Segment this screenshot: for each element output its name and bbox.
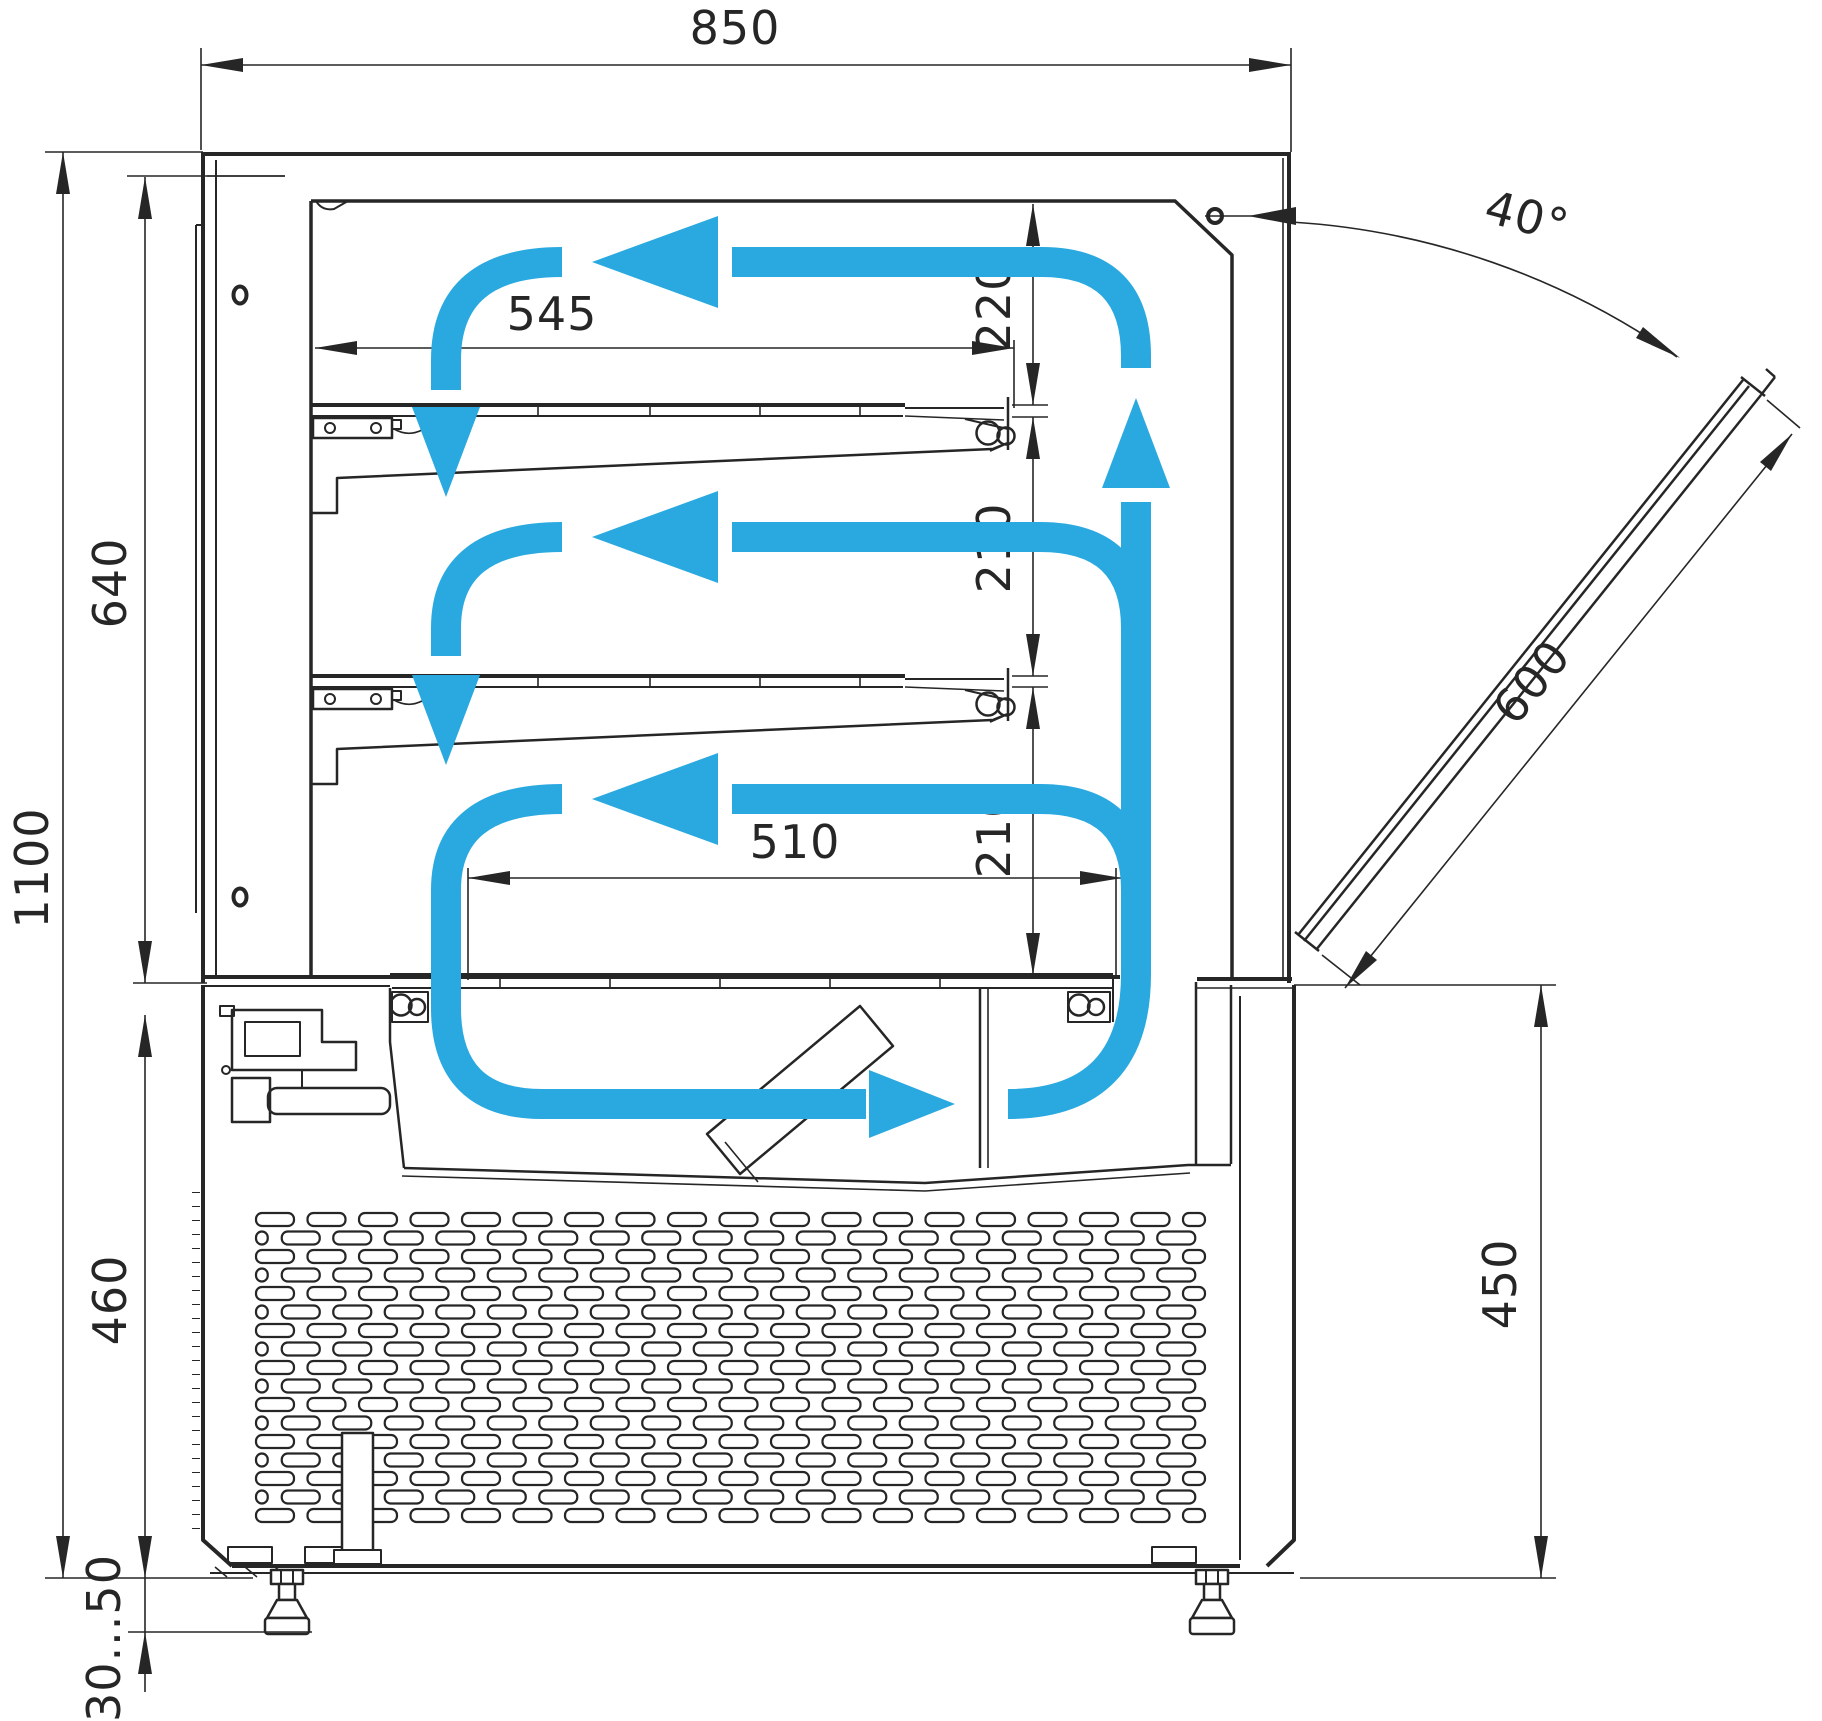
- grille-slot: [720, 1472, 758, 1485]
- grille-slot: [771, 1324, 809, 1337]
- grille-slot: [462, 1324, 500, 1337]
- grille-slot: [488, 1454, 526, 1467]
- grille-slot: [1157, 1343, 1195, 1356]
- grille-slot: [900, 1454, 938, 1467]
- grille-slot: [745, 1232, 783, 1245]
- grille-slot: [514, 1398, 552, 1411]
- dim-label: 640: [83, 538, 137, 629]
- grille-slot: [488, 1306, 526, 1319]
- grille-slot: [308, 1472, 346, 1485]
- dim-top-clearance: 220: [967, 204, 1048, 417]
- grille-slot: [565, 1324, 603, 1337]
- grille-slot: [256, 1417, 268, 1430]
- grille-slot: [694, 1306, 732, 1319]
- grille-slot: [771, 1250, 809, 1263]
- airflow-top-duct: [732, 262, 1136, 368]
- grille-slot: [668, 1435, 706, 1448]
- grille-slot: [874, 1287, 912, 1300]
- grille-slot: [617, 1398, 655, 1411]
- grille-slot: [591, 1380, 629, 1393]
- dim-label: 40°: [1479, 180, 1575, 254]
- grille-slot: [539, 1343, 577, 1356]
- grille-slot: [848, 1269, 886, 1282]
- grille-slot: [1080, 1509, 1118, 1522]
- grille-slot: [720, 1435, 758, 1448]
- grille-slot: [1029, 1509, 1067, 1522]
- grille-slot: [256, 1380, 268, 1393]
- airflow-arrow-down-1: [412, 407, 480, 497]
- grille-slot: [591, 1269, 629, 1282]
- grille-slot: [617, 1213, 655, 1226]
- grille-slot: [436, 1269, 474, 1282]
- grille-slot: [1080, 1213, 1118, 1226]
- grille-slot: [977, 1287, 1015, 1300]
- grille-slot: [926, 1213, 964, 1226]
- grille-slot: [617, 1324, 655, 1337]
- grille-slot: [874, 1472, 912, 1485]
- grille-slot: [926, 1435, 964, 1448]
- grille-slot: [436, 1417, 474, 1430]
- grille-slot: [771, 1361, 809, 1374]
- grille-slot: [745, 1380, 783, 1393]
- grille-slot: [926, 1287, 964, 1300]
- grille-slot: [1003, 1269, 1041, 1282]
- grille-slot: [642, 1269, 680, 1282]
- dim-shelf-length: 545: [315, 287, 1014, 408]
- grille-slot: [900, 1306, 938, 1319]
- dim-base-height: 460: [83, 1015, 152, 1578]
- grille-slot: [797, 1417, 835, 1430]
- grille-slot: [874, 1213, 912, 1226]
- grille-slot: [823, 1435, 861, 1448]
- grille-slot: [488, 1491, 526, 1504]
- grille-slot: [1132, 1250, 1170, 1263]
- grille-slot: [308, 1398, 346, 1411]
- grille-slot: [745, 1454, 783, 1467]
- grille-slot: [385, 1232, 423, 1245]
- grille-slot: [1157, 1417, 1195, 1430]
- airflow-arrow-up: [1102, 398, 1170, 488]
- grille-slot: [565, 1435, 603, 1448]
- grille-slot: [1080, 1287, 1118, 1300]
- grille-slot: [617, 1361, 655, 1374]
- grille-slot: [797, 1491, 835, 1504]
- grille-slot: [668, 1361, 706, 1374]
- grille-slot: [668, 1509, 706, 1522]
- door-handle-lip: [1761, 369, 1775, 395]
- back-wall-hole-top: [234, 287, 247, 304]
- grille-slot: [1029, 1361, 1067, 1374]
- grille-slot: [1080, 1398, 1118, 1411]
- grille-slot: [1106, 1417, 1144, 1430]
- grille-slot: [1132, 1398, 1170, 1411]
- grille-slot: [411, 1472, 449, 1485]
- grille-slot: [488, 1269, 526, 1282]
- technical-drawing-page: 850 1100 640 460 3: [0, 0, 1822, 1721]
- grille-slot: [256, 1509, 294, 1522]
- grille-slot: [1157, 1380, 1195, 1393]
- grille-slot: [797, 1269, 835, 1282]
- dim-label: 510: [750, 815, 841, 869]
- grille-slot: [256, 1343, 268, 1356]
- grille-slot: [539, 1491, 577, 1504]
- grille-slot: [977, 1213, 1015, 1226]
- grille-slot: [411, 1213, 449, 1226]
- grille-slot: [565, 1509, 603, 1522]
- grille-slot: [848, 1491, 886, 1504]
- grille-slot: [1054, 1454, 1092, 1467]
- grille-slot: [256, 1361, 294, 1374]
- grille-slot: [514, 1435, 552, 1448]
- grille-slot: [539, 1454, 577, 1467]
- dim-label: 450: [1473, 1239, 1527, 1330]
- grille-slot: [308, 1509, 346, 1522]
- grille-slot: [900, 1491, 938, 1504]
- grille-slot: [823, 1361, 861, 1374]
- grille-slot: [1054, 1306, 1092, 1319]
- grille-slot: [436, 1491, 474, 1504]
- back-wall-hole-bottom: [234, 889, 247, 906]
- grille-slot: [900, 1232, 938, 1245]
- grille-slot: [462, 1287, 500, 1300]
- grille-slot: [1157, 1232, 1195, 1245]
- grille-slot: [977, 1250, 1015, 1263]
- airflow-mid-duct-1: [732, 537, 1136, 628]
- grille-slot: [282, 1343, 320, 1356]
- grille-slot: [977, 1472, 1015, 1485]
- grille-slot: [642, 1454, 680, 1467]
- grille-slot: [385, 1380, 423, 1393]
- thermostat-bulb: [268, 1088, 390, 1114]
- grille-slot: [1003, 1417, 1041, 1430]
- grille-slot: [282, 1380, 320, 1393]
- grille-slot: [823, 1213, 861, 1226]
- grille-slot: [926, 1250, 964, 1263]
- grille-slot: [1183, 1435, 1205, 1448]
- grille-slot: [462, 1472, 500, 1485]
- grille-slot: [617, 1250, 655, 1263]
- grille-slot: [1080, 1361, 1118, 1374]
- grille-slot: [1003, 1343, 1041, 1356]
- grille-slot: [1132, 1287, 1170, 1300]
- dim-display-height: 640: [83, 176, 285, 983]
- grille-slot: [874, 1361, 912, 1374]
- grille-slot: [462, 1398, 500, 1411]
- grille-slot: [308, 1213, 346, 1226]
- grille-slot: [591, 1417, 629, 1430]
- grille-slot: [926, 1472, 964, 1485]
- grille-slot: [256, 1250, 294, 1263]
- grille-slot: [462, 1509, 500, 1522]
- grille-slot: [514, 1213, 552, 1226]
- grille-slot: [1029, 1213, 1067, 1226]
- grille-slot: [565, 1361, 603, 1374]
- grille-slot: [1183, 1324, 1205, 1337]
- dim-base-front-height: 450: [1294, 985, 1556, 1578]
- grille-slot: [874, 1509, 912, 1522]
- grille-slot: [282, 1417, 320, 1430]
- grille-slot: [848, 1380, 886, 1393]
- grille-slot: [462, 1435, 500, 1448]
- grille-slot: [617, 1509, 655, 1522]
- grille-slot: [1157, 1269, 1195, 1282]
- grille-slot: [694, 1454, 732, 1467]
- grille-slot: [1029, 1250, 1067, 1263]
- grille-slot: [436, 1306, 474, 1319]
- grille-slot: [1132, 1435, 1170, 1448]
- dim-label: 460: [83, 1255, 137, 1346]
- dim-label: 1100: [5, 807, 59, 928]
- grille-slot: [539, 1232, 577, 1245]
- grille-slot: [771, 1435, 809, 1448]
- dim-label: 30...50: [77, 1554, 131, 1721]
- grille-slot: [1080, 1472, 1118, 1485]
- grille-slot: [668, 1472, 706, 1485]
- adjustable-foot-left: [265, 1570, 309, 1634]
- grille-slot: [333, 1306, 371, 1319]
- grille-slot: [256, 1435, 294, 1448]
- grille-slot: [385, 1306, 423, 1319]
- grille-slot: [256, 1306, 268, 1319]
- grille-slot: [977, 1435, 1015, 1448]
- airflow-arrow-left-bottom: [592, 753, 718, 845]
- grille-slot: [745, 1417, 783, 1430]
- airflow-arrow-left-top: [592, 216, 718, 308]
- grille-slot: [900, 1269, 938, 1282]
- dim-door-length: 600: [1322, 400, 1800, 988]
- grille-slot: [694, 1417, 732, 1430]
- grille-slot: [1106, 1380, 1144, 1393]
- grille-slot: [333, 1380, 371, 1393]
- grille-slot: [591, 1306, 629, 1319]
- grille-slot: [926, 1324, 964, 1337]
- grille-slot: [1157, 1306, 1195, 1319]
- grille-slot: [1106, 1491, 1144, 1504]
- grille-slot: [1054, 1269, 1092, 1282]
- grille-slot: [823, 1250, 861, 1263]
- grille-slot: [951, 1343, 989, 1356]
- grille-slot: [565, 1213, 603, 1226]
- dim-label: 850: [690, 1, 781, 55]
- grille-slot: [514, 1324, 552, 1337]
- grille-slot: [256, 1398, 294, 1411]
- grille-slot: [617, 1472, 655, 1485]
- grille-slot: [1157, 1454, 1195, 1467]
- grille-slot: [771, 1472, 809, 1485]
- shelf-bracket-arm: [312, 720, 992, 784]
- grille-slot: [1132, 1361, 1170, 1374]
- grille-slot: [1029, 1324, 1067, 1337]
- grille-slot: [694, 1269, 732, 1282]
- grille-slot: [565, 1287, 603, 1300]
- grille-slot: [642, 1343, 680, 1356]
- grille-slot: [617, 1435, 655, 1448]
- grille-slot: [771, 1398, 809, 1411]
- grille-slot: [1132, 1472, 1170, 1485]
- grille-slot: [1106, 1343, 1144, 1356]
- grille-slot: [823, 1324, 861, 1337]
- grille-slot: [848, 1343, 886, 1356]
- grille-slot: [951, 1417, 989, 1430]
- grille-slot: [1054, 1380, 1092, 1393]
- grille-slot: [436, 1380, 474, 1393]
- dim-lower-clearance: 210: [967, 687, 1040, 975]
- grille-slot: [591, 1491, 629, 1504]
- grille-slot: [642, 1232, 680, 1245]
- bottom-tray: [390, 975, 1113, 1022]
- grille-slot: [771, 1509, 809, 1522]
- grille-slot: [359, 1361, 397, 1374]
- grille-slot: [745, 1343, 783, 1356]
- grille-slot: [771, 1287, 809, 1300]
- grille-slot: [385, 1491, 423, 1504]
- shelf-bracket-arm: [312, 449, 992, 513]
- grille-slot: [308, 1250, 346, 1263]
- grille-slot: [1029, 1435, 1067, 1448]
- grille-slot: [823, 1398, 861, 1411]
- grille-slot: [1054, 1491, 1092, 1504]
- grille-slot: [926, 1361, 964, 1374]
- grille-slot: [488, 1417, 526, 1430]
- refrigerated-display-case-section-drawing: 850 1100 640 460 3: [0, 0, 1822, 1721]
- grille-slot: [1080, 1250, 1118, 1263]
- dim-label: 545: [507, 287, 598, 341]
- grille-slot: [411, 1398, 449, 1411]
- grille-slot: [1054, 1232, 1092, 1245]
- grille-slot: [874, 1398, 912, 1411]
- grille-slot: [359, 1213, 397, 1226]
- grille-slot: [333, 1232, 371, 1245]
- grille-slot: [359, 1398, 397, 1411]
- grille-slot: [951, 1269, 989, 1282]
- grille-slot: [514, 1287, 552, 1300]
- grille-slot: [642, 1417, 680, 1430]
- grille-slot: [488, 1232, 526, 1245]
- grille-slot: [385, 1269, 423, 1282]
- grille-slot: [514, 1250, 552, 1263]
- grille-slot: [900, 1380, 938, 1393]
- grille-slot: [591, 1232, 629, 1245]
- grille-slot: [308, 1324, 346, 1337]
- grille-slot: [565, 1472, 603, 1485]
- grille-slot: [282, 1269, 320, 1282]
- grille-slot: [951, 1380, 989, 1393]
- grille-slot: [359, 1287, 397, 1300]
- grille-slot: [1054, 1343, 1092, 1356]
- grille-slot: [977, 1361, 1015, 1374]
- grille-slot: [977, 1509, 1015, 1522]
- grille-slot: [488, 1380, 526, 1393]
- grille-slot: [436, 1232, 474, 1245]
- grille-slot: [694, 1343, 732, 1356]
- dim-label: 600: [1482, 630, 1581, 735]
- grille-slot: [797, 1306, 835, 1319]
- grille-slot: [411, 1435, 449, 1448]
- grille-slot: [591, 1454, 629, 1467]
- airflow-arrow-down-2: [412, 675, 480, 765]
- adjustable-foot-right: [1190, 1570, 1234, 1634]
- grille-slot: [977, 1398, 1015, 1411]
- airflow-arrow-left-mid: [592, 491, 718, 583]
- grille-slot: [333, 1417, 371, 1430]
- grille-slot: [282, 1232, 320, 1245]
- grille-slot: [1183, 1509, 1205, 1522]
- grille-slot: [256, 1454, 268, 1467]
- grille-slot: [720, 1509, 758, 1522]
- grille-slot: [642, 1380, 680, 1393]
- grille-slot: [1183, 1250, 1205, 1263]
- grille-slot: [462, 1250, 500, 1263]
- grille-slot: [926, 1509, 964, 1522]
- grille-slot: [1132, 1213, 1170, 1226]
- grille-slot: [874, 1324, 912, 1337]
- grille-slot: [436, 1343, 474, 1356]
- grille-slot: [951, 1454, 989, 1467]
- grille-slot: [565, 1250, 603, 1263]
- grille-slot: [926, 1398, 964, 1411]
- grille-slot: [823, 1287, 861, 1300]
- grille-slot: [1003, 1491, 1041, 1504]
- grille-slot: [823, 1509, 861, 1522]
- grille-slot: [308, 1287, 346, 1300]
- grille-slot: [462, 1213, 500, 1226]
- grille-pillar: [334, 1433, 381, 1564]
- grille-slot: [1132, 1324, 1170, 1337]
- airflow-arrow-right-well: [869, 1070, 955, 1138]
- grille-slot: [514, 1472, 552, 1485]
- grille-slot: [951, 1232, 989, 1245]
- grille-slot: [668, 1250, 706, 1263]
- grille-slot: [1029, 1287, 1067, 1300]
- grille-slot: [745, 1306, 783, 1319]
- grille-slot: [256, 1269, 268, 1282]
- grille-slot: [720, 1287, 758, 1300]
- grille-slot: [668, 1324, 706, 1337]
- grille-slot: [565, 1398, 603, 1411]
- grille-slot: [1183, 1287, 1205, 1300]
- grille-slot: [900, 1417, 938, 1430]
- grille-slot: [642, 1491, 680, 1504]
- grille-slot: [617, 1287, 655, 1300]
- grille-slot: [874, 1435, 912, 1448]
- grille-slot: [282, 1454, 320, 1467]
- grille-slot: [1183, 1472, 1205, 1485]
- grille-slot: [951, 1491, 989, 1504]
- grille-slot: [900, 1343, 938, 1356]
- grille-slot: [694, 1232, 732, 1245]
- grille-slot: [514, 1361, 552, 1374]
- grille-slot: [720, 1361, 758, 1374]
- grille-slot: [720, 1250, 758, 1263]
- grille-slot: [385, 1343, 423, 1356]
- grille-slot: [539, 1417, 577, 1430]
- grille-slot: [694, 1380, 732, 1393]
- grille-slot: [848, 1417, 886, 1430]
- grille-slot: [1080, 1435, 1118, 1448]
- grille-slot: [951, 1306, 989, 1319]
- grille-slot: [256, 1232, 268, 1245]
- grille-slot: [1106, 1232, 1144, 1245]
- grille-slot: [514, 1509, 552, 1522]
- grille-slot: [874, 1250, 912, 1263]
- grille-slot: [385, 1417, 423, 1430]
- grille-slot: [385, 1454, 423, 1467]
- grille-slot: [1157, 1491, 1195, 1504]
- grille-slot: [333, 1343, 371, 1356]
- grille-slot: [539, 1306, 577, 1319]
- grille-slot: [411, 1287, 449, 1300]
- grille-slot: [411, 1250, 449, 1263]
